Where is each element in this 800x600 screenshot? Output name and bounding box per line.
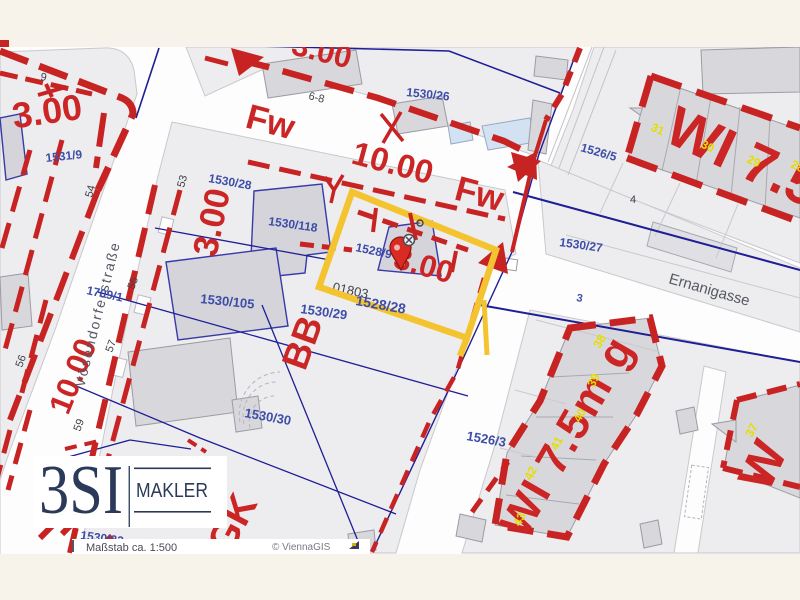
svg-text:4: 4	[630, 194, 636, 206]
svg-text:MAKLER: MAKLER	[136, 480, 208, 502]
svg-text:3SI: 3SI	[39, 452, 123, 529]
svg-text:Maßstab ca. 1:500: Maßstab ca. 1:500	[86, 542, 177, 554]
svg-text:© ViennaGIS: © ViennaGIS	[272, 542, 331, 553]
